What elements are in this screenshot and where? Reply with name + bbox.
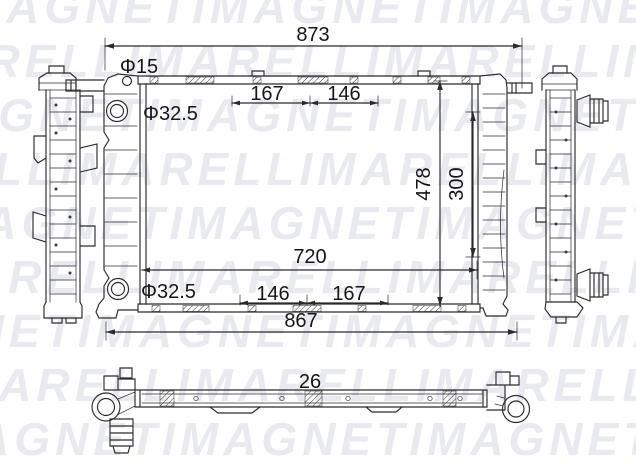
dim-bottom-spans: 146 167	[240, 283, 388, 305]
side-bracket-right	[80, 96, 97, 246]
drain-pipe	[110, 419, 133, 453]
outlet-pipe-right	[507, 83, 532, 93]
dim-720: 720	[142, 246, 477, 279]
dim-phi32-top-label: Φ32.5	[143, 103, 198, 125]
dim-478: 478	[413, 81, 447, 306]
left-side-view	[33, 66, 97, 323]
right-side-view	[536, 66, 608, 323]
barb-fitting-bottom	[577, 269, 608, 301]
bottom-port-opening	[108, 279, 129, 300]
dim-867: 867	[106, 310, 517, 340]
dim-146-bottom-label: 146	[256, 283, 289, 305]
dim-867-label: 867	[284, 310, 317, 332]
bottom-right-fitting	[487, 372, 530, 423]
dim-top-spans: 167 146	[232, 83, 378, 106]
dim-167-top-label: 167	[250, 83, 283, 105]
left-tank	[96, 74, 138, 318]
dim-phi15-label: Φ15	[120, 56, 158, 78]
radiator-technical-drawing: IMAGNETIMAGNETIMAGNETIM MARELLIMARELLIMA…	[0, 0, 636, 466]
right-tank	[480, 74, 508, 316]
bottom-left-fitting	[92, 368, 135, 453]
dim-26-label: 26	[299, 371, 321, 393]
barb-fitting-top	[577, 95, 608, 127]
hose-ring-left	[92, 393, 120, 421]
dim-720-label: 720	[293, 246, 326, 268]
side-bracket-left	[33, 136, 46, 242]
dim-phi32-bottom-label: Φ32.5	[141, 281, 196, 303]
dim-167-bottom-label: 167	[332, 283, 365, 305]
dim-146-top-label: 146	[327, 83, 360, 105]
top-port-opening	[107, 101, 128, 122]
dim-478-label: 478	[413, 167, 435, 200]
dim-873-label: 873	[296, 24, 329, 46]
dim-300-label: 300	[446, 167, 468, 200]
drawing-canvas: 873 Φ15 Φ32.5 167 146 478 300	[0, 0, 636, 466]
inlet-pipe-left	[66, 80, 104, 91]
hose-ring-right	[503, 396, 530, 423]
crossmember-bar	[135, 390, 487, 413]
dim-300: 300	[446, 112, 480, 257]
